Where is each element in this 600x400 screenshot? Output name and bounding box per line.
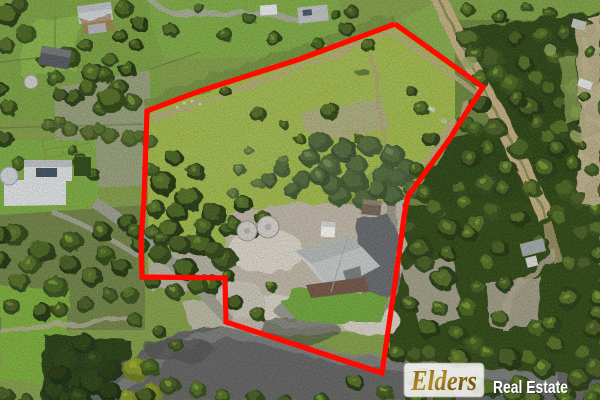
svg-text:Real Estate: Real Estate (493, 377, 568, 397)
svg-text:Elders: Elders (410, 366, 477, 397)
